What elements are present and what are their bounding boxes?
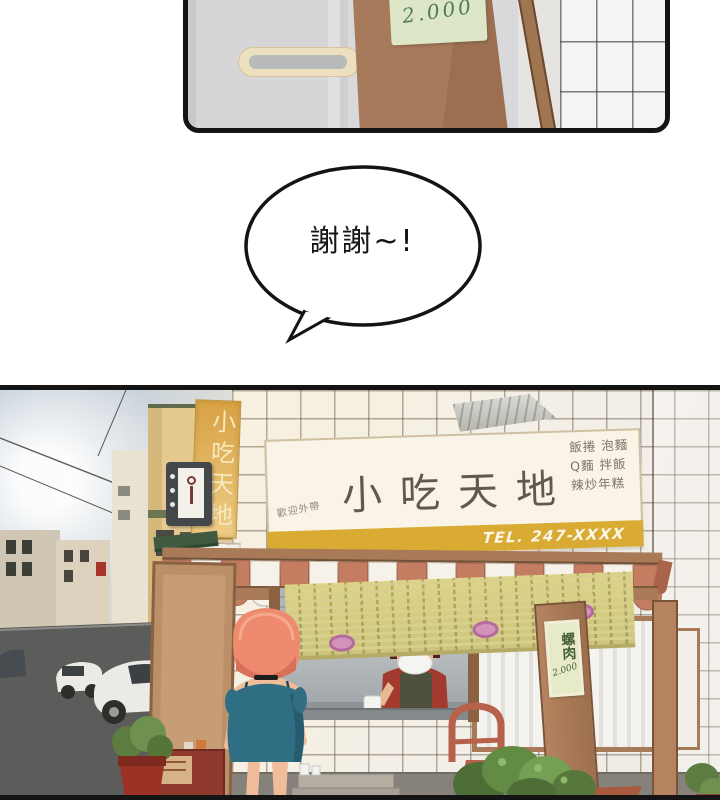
speech-bubble-text: 謝謝~! bbox=[243, 216, 481, 260]
panel-top: 2.000 bbox=[183, 0, 670, 133]
background-buildings bbox=[0, 450, 152, 632]
speech-bubble: 謝謝~! bbox=[243, 164, 489, 344]
comic-page: 2.000 謝謝~! bbox=[0, 0, 720, 800]
sign-dot bbox=[170, 502, 175, 507]
door-handle bbox=[238, 47, 360, 77]
street-signboard bbox=[166, 462, 212, 526]
figure-icon bbox=[187, 476, 196, 485]
sign-menu-list: 飯捲 泡麵 Q麵 拌飯 辣炒年糕 bbox=[569, 436, 631, 495]
sign-dot bbox=[170, 488, 175, 493]
price-note: 2.000 bbox=[388, 0, 487, 45]
man-apron bbox=[400, 670, 432, 710]
sign-menu-line: Q麵 拌飯 bbox=[570, 455, 630, 477]
sign-dot bbox=[170, 474, 175, 479]
shop-sign: 歡迎外帶 小吃天地 飯捲 泡麵 Q麵 拌飯 辣炒年糕 TEL. 247-XXXX bbox=[264, 428, 644, 558]
left-wood-panel-inner bbox=[159, 574, 226, 792]
banner-stamp bbox=[472, 621, 499, 639]
power-line bbox=[98, 390, 126, 456]
right-wood-post bbox=[652, 600, 678, 800]
note-price-text: 2.000 bbox=[389, 0, 487, 30]
left-wood-panel bbox=[147, 561, 236, 800]
street-sign-card bbox=[178, 468, 204, 518]
tile-wall-top bbox=[560, 0, 665, 128]
sign-welcome-text: 歡迎外帶 bbox=[275, 497, 321, 520]
window-post bbox=[269, 586, 280, 722]
panel-bottom: 歡迎外帶 小吃天地 飯捲 泡麵 Q麵 拌飯 辣炒年糕 TEL. 247-XXXX… bbox=[0, 385, 720, 800]
door-handle-bar bbox=[249, 55, 347, 69]
shop-name-text: 小吃天地 bbox=[317, 455, 599, 522]
panel-bottom-border bbox=[0, 795, 720, 800]
post-price-note: 螺肉 2.000 bbox=[544, 619, 584, 697]
banner-stamp bbox=[329, 634, 356, 652]
parked-car-dark bbox=[0, 650, 26, 678]
post-note-item-text: 螺肉 bbox=[547, 622, 579, 666]
serving-counter bbox=[280, 708, 468, 720]
sign-menu-line: 辣炒年糕 bbox=[571, 473, 631, 495]
figure-icon bbox=[190, 486, 193, 504]
